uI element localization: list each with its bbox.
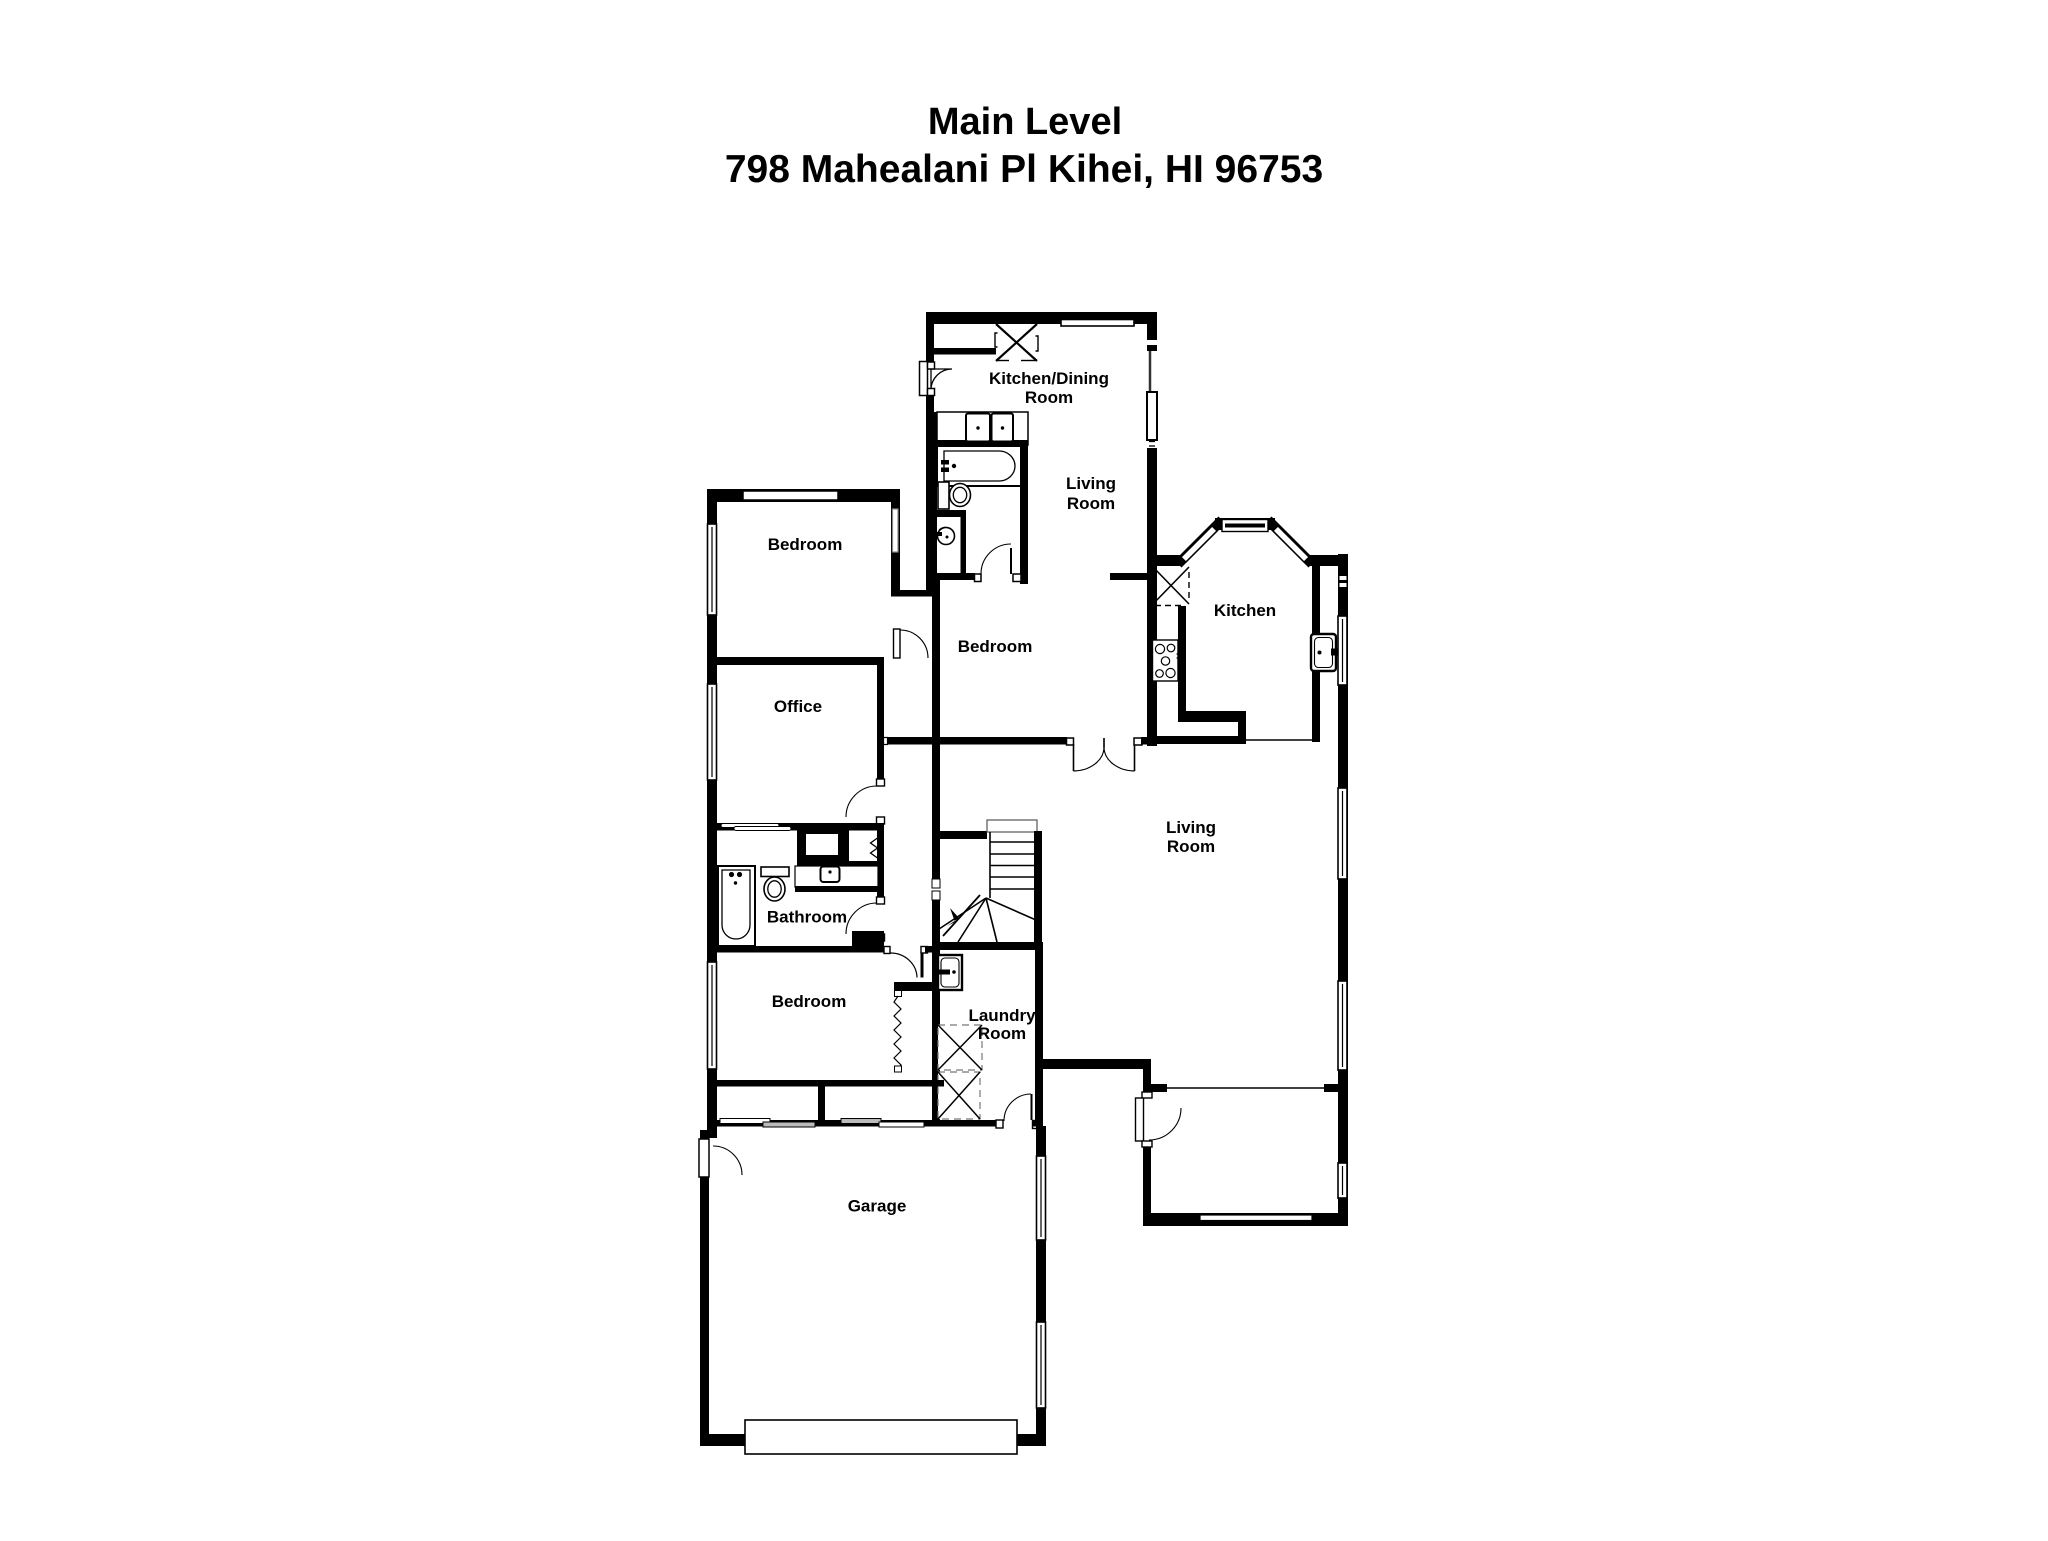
svg-text:Main Level: Main Level bbox=[928, 101, 1122, 143]
svg-text:Living: Living bbox=[1166, 818, 1216, 837]
svg-text:Room: Room bbox=[978, 1024, 1026, 1043]
svg-text:Kitchen/Dining: Kitchen/Dining bbox=[989, 369, 1109, 388]
svg-text:Living: Living bbox=[1066, 474, 1116, 493]
svg-text:Room: Room bbox=[1067, 494, 1115, 513]
svg-text:Office: Office bbox=[774, 697, 822, 716]
svg-text:798 Mahealani Pl Kihei, HI 967: 798 Mahealani Pl Kihei, HI 96753 bbox=[725, 148, 1323, 191]
svg-text:Bathroom: Bathroom bbox=[767, 908, 847, 927]
svg-text:Garage: Garage bbox=[848, 1197, 907, 1216]
svg-text:Kitchen: Kitchen bbox=[1214, 601, 1276, 620]
svg-text:Bedroom: Bedroom bbox=[768, 535, 843, 554]
svg-text:Room: Room bbox=[1025, 388, 1073, 407]
svg-text:Bedroom: Bedroom bbox=[958, 637, 1033, 656]
svg-text:Bedroom: Bedroom bbox=[772, 992, 847, 1011]
svg-text:Laundry: Laundry bbox=[968, 1006, 1036, 1025]
svg-text:Room: Room bbox=[1167, 837, 1215, 856]
